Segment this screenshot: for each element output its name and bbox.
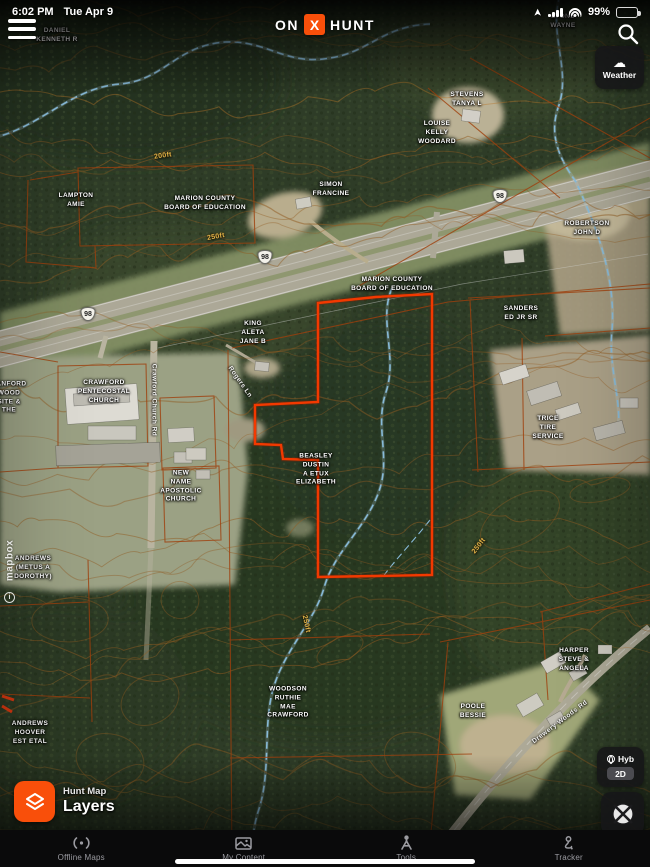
cellular-signal-icon	[548, 8, 563, 17]
wifi-icon	[569, 7, 582, 17]
attribution-info-icon[interactable]: i	[4, 592, 15, 603]
map-tint	[0, 0, 650, 830]
my-content-icon	[234, 835, 253, 851]
home-indicator[interactable]	[175, 859, 475, 864]
map-viewport[interactable]: DANIEL KENNETH RLYONS WAYNESTEVENS TANYA…	[0, 0, 650, 830]
tab-label: Tracker	[555, 853, 583, 862]
weather-label: Weather	[603, 70, 636, 80]
satellite-map[interactable]	[0, 0, 650, 830]
onx-hunt-app: DANIEL KENNETH RLYONS WAYNESTEVENS TANYA…	[0, 0, 650, 867]
locate-crosshair-icon	[611, 802, 635, 826]
locate-button[interactable]	[601, 792, 644, 835]
globe-icon	[607, 755, 615, 763]
mapbox-watermark: mapbox	[5, 531, 16, 591]
battery-percent: 99%	[588, 6, 610, 18]
location-arrow-icon: ➤	[533, 8, 543, 16]
search-icon[interactable]	[616, 22, 640, 46]
weather-button[interactable]: ☁ Weather	[595, 46, 644, 89]
layers-big-label: Layers	[63, 798, 115, 816]
hamburger-menu-icon[interactable]	[8, 17, 38, 41]
map-mode-control: Hyb 2D	[597, 747, 644, 787]
2d-label: 2D	[615, 769, 626, 779]
layers-icon	[14, 781, 55, 822]
tab-label: Offline Maps	[58, 853, 105, 862]
tab-tracker[interactable]: Tracker	[488, 830, 650, 867]
layers-small-label: Hunt Map	[63, 787, 115, 798]
basemap-toggle[interactable]: Hyb	[607, 754, 634, 764]
2d-toggle[interactable]: 2D	[607, 767, 634, 780]
cloud-icon: ☁	[613, 56, 626, 69]
tools-icon	[397, 835, 416, 851]
battery-icon	[616, 7, 638, 18]
layers-button[interactable]: Hunt Map Layers	[14, 781, 115, 822]
date: Tue Apr 9	[64, 6, 114, 18]
tracker-icon	[559, 835, 578, 851]
status-bar: 6:02 PM Tue Apr 9 ➤ 99%	[0, 0, 650, 24]
basemap-label: Hyb	[618, 754, 634, 764]
tab-offline-maps[interactable]: Offline Maps	[0, 830, 163, 867]
offline-maps-icon	[72, 835, 91, 851]
